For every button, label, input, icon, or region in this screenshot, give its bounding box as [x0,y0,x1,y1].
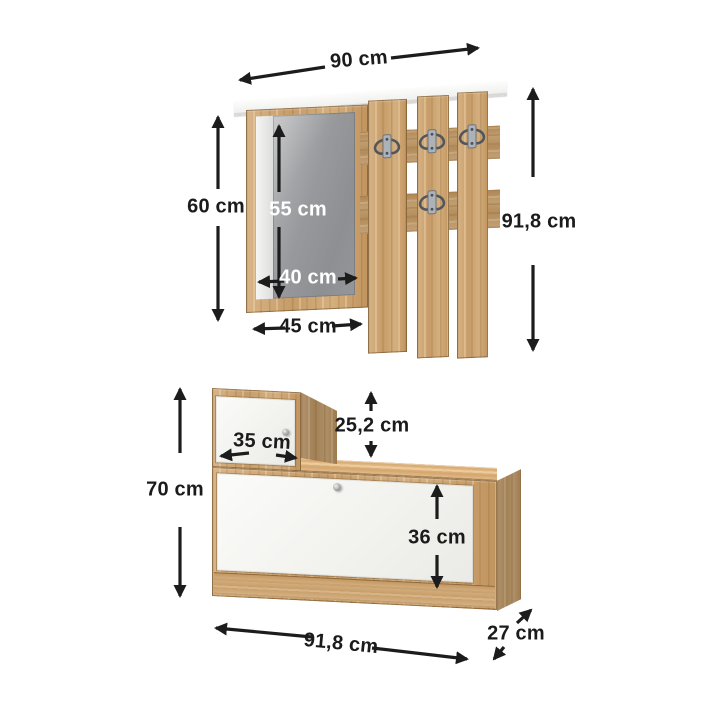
coat-hook-icon [414,187,450,221]
dim-label-lower-unit-depth: 27 cm [487,623,545,646]
dim-label-wall-panel-height: 91,8 cm [502,211,577,234]
dim-label-small-door-width: 35 cm [233,429,292,455]
product-dimension-diagram: 90 cm 60 cm 55 cm 40 cm 45 cm 91,8 cm 35… [0,0,713,713]
dim-label-mirror-frame-width: 45 cm [279,316,337,339]
hook-panel [360,90,500,368]
dim-label-flap-door-height: 36 cm [408,527,466,550]
dim-label-lower-unit-width: 91,8 cm [303,629,380,659]
small-cabinet-side [301,392,337,464]
coat-hook-icon [369,131,405,165]
bench-side [497,468,521,612]
dim-label-small-cabinet-height: 25,2 cm [335,415,410,438]
dim-label-mirror-frame-height: 60 cm [187,196,245,219]
coat-hook-icon [414,126,450,160]
dim-label-mirror-height: 55 cm [269,199,327,222]
dim-label-top-width: 90 cm [329,46,388,73]
shoe-cabinet-knob [333,483,341,491]
dim-label-lower-unit-height: 70 cm [146,479,204,502]
dim-label-mirror-width: 40 cm [279,267,337,290]
coat-hook-icon [454,121,490,155]
